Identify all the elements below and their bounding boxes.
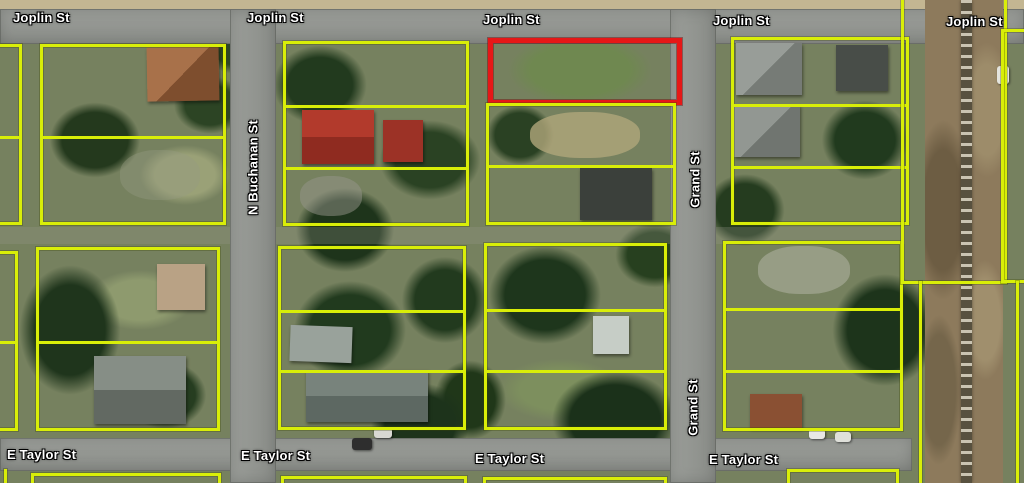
parcel-block-railroad <box>901 0 1007 284</box>
parcel-block <box>731 37 909 225</box>
parcel-line <box>1016 281 1019 483</box>
street-label-joplin-4: Joplin St <box>713 13 770 28</box>
parcel-block <box>0 251 18 431</box>
street-label-e-taylor-3: E Taylor St <box>475 451 544 466</box>
parcel-block <box>486 103 676 225</box>
parcel-block <box>36 247 220 431</box>
street-label-joplin-5: Joplin St <box>946 14 1003 29</box>
street-label-grand-2: Grand St <box>686 358 701 458</box>
parcel-block <box>278 246 466 430</box>
parcel-block <box>0 44 22 225</box>
street-label-joplin-1: Joplin St <box>13 10 70 25</box>
street-label-e-taylor-1: E Taylor St <box>7 447 76 462</box>
car <box>835 432 851 442</box>
parcel-block <box>1001 29 1024 283</box>
car <box>352 438 372 450</box>
parcel-block <box>723 241 903 431</box>
parcel-block <box>31 473 221 483</box>
street-label-e-taylor-4: E Taylor St <box>709 452 778 467</box>
parcel-block <box>281 476 467 483</box>
parcel-block <box>483 477 667 483</box>
parcel-line <box>4 469 7 483</box>
street-label-joplin-2: Joplin St <box>247 10 304 25</box>
road-n-buchanan-st <box>230 9 276 483</box>
street-label-n-buchanan: N Buchanan St <box>246 112 261 224</box>
parcel-block <box>283 41 469 226</box>
parcel-block <box>40 44 226 225</box>
highlighted-parcel <box>488 38 682 105</box>
street-label-joplin-3: Joplin St <box>483 12 540 27</box>
street-label-grand-1: Grand St <box>688 130 703 230</box>
parcel-line <box>919 281 922 483</box>
aerial-map-canvas[interactable]: Joplin St Joplin St Joplin St Joplin St … <box>0 0 1024 483</box>
street-label-e-taylor-2: E Taylor St <box>241 448 310 463</box>
parcel-block <box>787 469 899 483</box>
parcel-block <box>484 243 667 430</box>
